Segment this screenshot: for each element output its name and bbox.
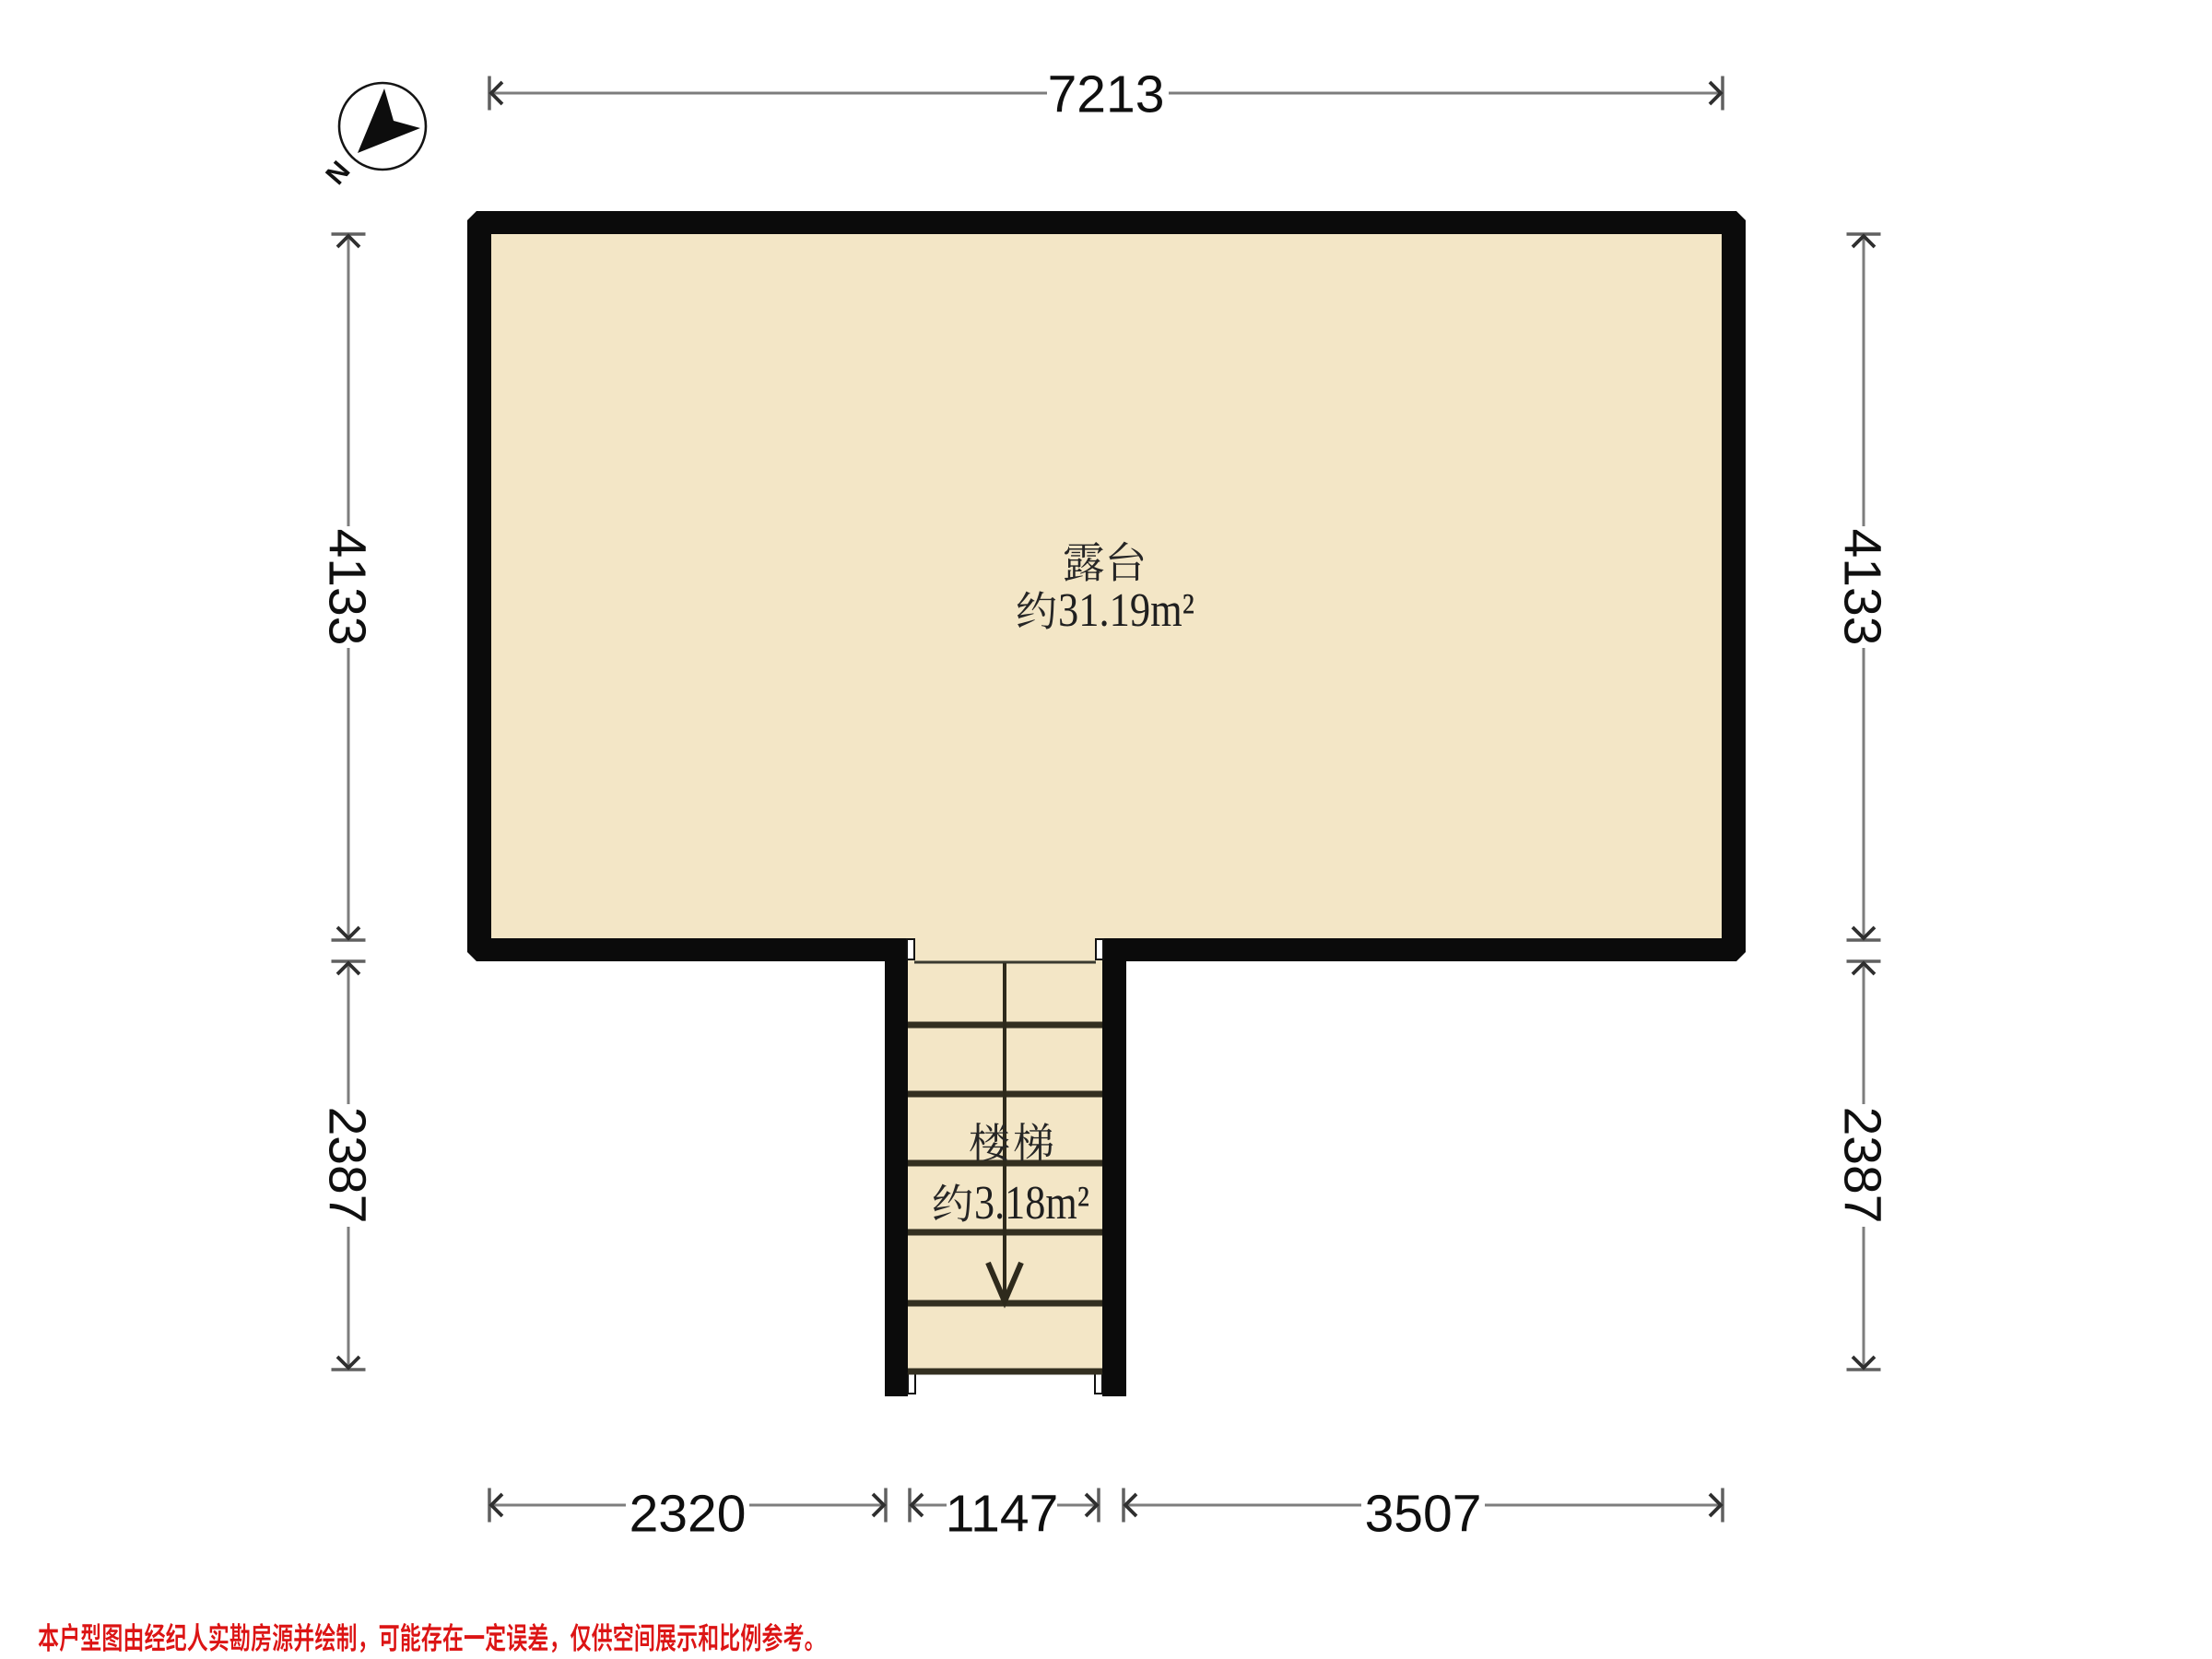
svg-text:N: N (320, 156, 356, 191)
svg-text:31.19m²: 31.19m² (1058, 584, 1194, 637)
svg-text:2387: 2387 (317, 1107, 376, 1224)
svg-text:2387: 2387 (1832, 1107, 1891, 1224)
svg-text:1147: 1147 (946, 1485, 1059, 1544)
svg-text:4133: 4133 (317, 529, 376, 646)
svg-text:4133: 4133 (1832, 529, 1891, 646)
svg-text:7213: 7213 (1048, 65, 1165, 124)
svg-text:3.18m²: 3.18m² (974, 1177, 1089, 1230)
svg-text:3507: 3507 (1365, 1485, 1482, 1544)
svg-text:2320: 2320 (629, 1485, 747, 1544)
